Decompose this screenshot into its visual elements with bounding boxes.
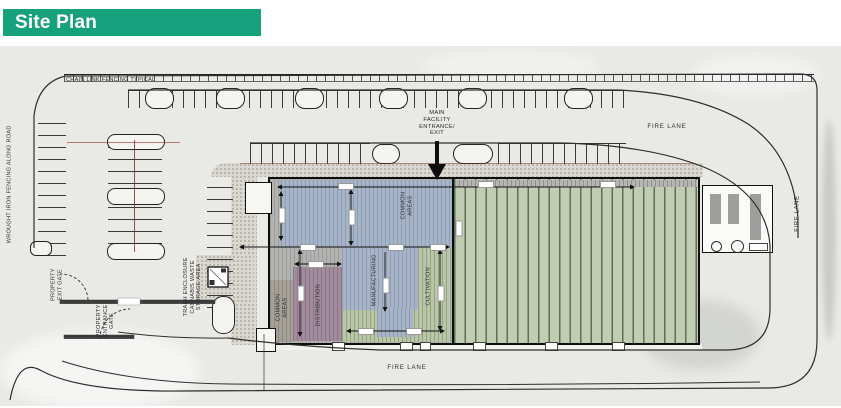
parking-island (458, 88, 487, 109)
dimension-label (383, 278, 390, 294)
door-mark (332, 342, 345, 351)
parking-island (216, 88, 245, 109)
dimension-label (338, 183, 354, 190)
parking-col-left (38, 118, 66, 256)
parking-island (379, 88, 408, 109)
parking-island (107, 243, 165, 260)
parking-island (107, 188, 165, 205)
site-plan-page: Site Plan (0, 0, 841, 408)
dimension-label (456, 221, 463, 237)
parking-island (453, 144, 493, 164)
tank-circle (711, 241, 722, 252)
parking-island (295, 88, 324, 109)
curb-island (30, 241, 52, 256)
dimension-label (300, 244, 316, 251)
dimension-label (600, 181, 616, 188)
dimension-label (358, 328, 374, 335)
exit-gate-label: PROPERTY EXIT GATE (50, 263, 63, 307)
door-mark (612, 342, 625, 351)
dimension-label (406, 328, 422, 335)
trash-enclosure-label: TRASH ENCLOSURE CANNABIS WASTE STORAGE A… (183, 254, 203, 320)
dimension-label (279, 208, 286, 224)
red-median-line (134, 140, 135, 252)
zone-label-common-bottom: COMMON AREAS (275, 290, 288, 326)
fire-lane-bottom-label: FIRE LANE (381, 364, 433, 371)
door-mark (545, 342, 558, 351)
entry-room (245, 182, 272, 214)
page-title: Site Plan (15, 12, 97, 34)
zone-label-common-top: COMMON AREAS (400, 188, 413, 224)
corner-room (256, 328, 276, 352)
door-mark (400, 342, 413, 351)
dimension-label (430, 244, 446, 251)
sidewalk-top (211, 163, 703, 177)
zone-common-areas-top (281, 180, 452, 247)
fence-top-label: CHAIN LINK FENCING TYPICAL (66, 77, 186, 84)
parking-row-second-left (250, 143, 370, 164)
fence-left-label: WROUGHT IRON FENCING ALONG ROAD (7, 119, 14, 249)
dimension-label (438, 286, 445, 302)
door-mark (420, 342, 431, 351)
dimension-label (388, 244, 404, 251)
red-sidewalk-line (240, 163, 696, 164)
parking-island (372, 144, 400, 164)
equipment-pad (710, 194, 721, 224)
parking-row-second-right (498, 143, 626, 164)
main-entrance-label: MAIN FACILITY ENTRANCE/ EXIT (407, 110, 467, 137)
equipment-pad (728, 194, 739, 224)
entrance-gate-label: PROPERTY ENTRANCE GATE (96, 299, 116, 343)
equipment-pad (750, 194, 761, 240)
dimension-label (308, 261, 324, 268)
page-title-bar: Site Plan (3, 9, 261, 36)
fire-lane-top-label: FIRE LANE (641, 123, 693, 130)
parking-island (145, 88, 174, 109)
aerial-patch (822, 120, 836, 340)
parking-island (564, 88, 593, 109)
zone-label-cultivation: CULTIVATION (426, 260, 433, 312)
dimension-label (349, 210, 356, 226)
fire-lane-right-label: FIRE LANE (794, 194, 801, 234)
dimension-label (478, 181, 494, 188)
equipment-slab (749, 243, 768, 251)
parking-row-top (128, 90, 624, 108)
tank-circle (731, 240, 744, 253)
door-mark (473, 342, 486, 351)
zone-manufacturing (342, 247, 418, 310)
dimension-label (298, 286, 305, 302)
parking-island (212, 296, 235, 334)
zone-cultivation-strip (418, 247, 451, 310)
red-aisle-line (67, 142, 180, 143)
zone-label-manufacturing: MANUFACTURING (372, 248, 379, 312)
zone-cultivation-hall (452, 177, 700, 345)
parking-col-inner (207, 186, 233, 308)
zone-label-distribution: DISTRIBUTION (316, 278, 323, 332)
